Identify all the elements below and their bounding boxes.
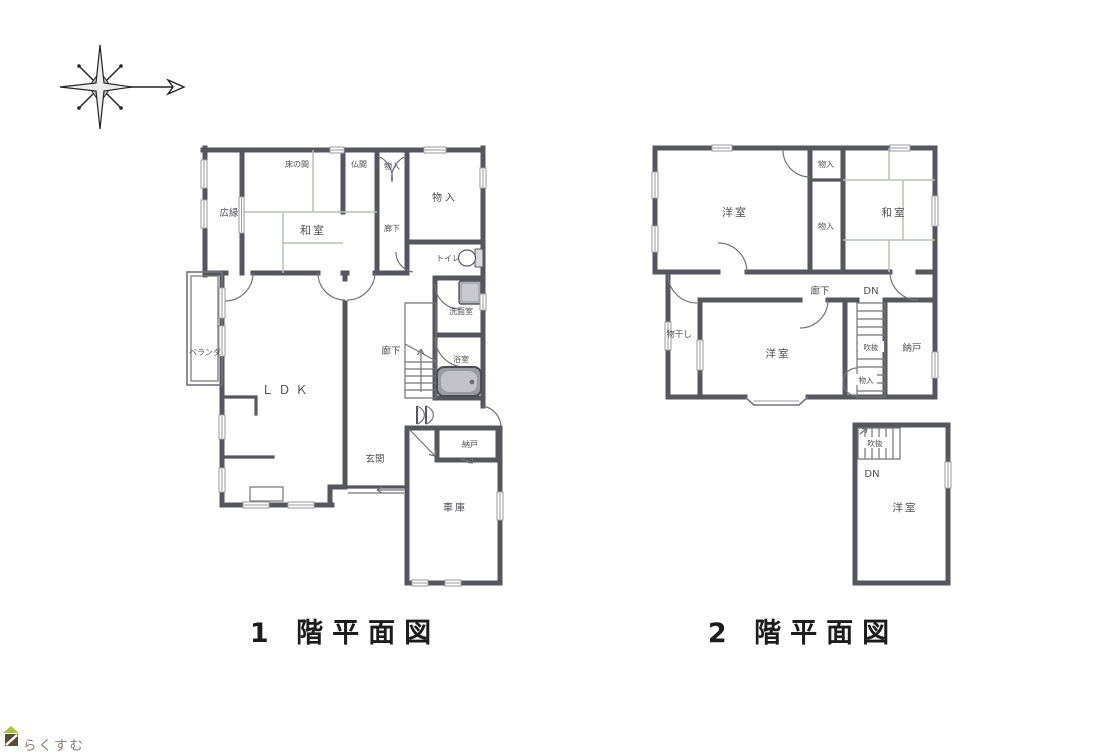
room-label-washitsu-1f: 和室 [300, 223, 326, 237]
logo-text: らくすむ [23, 738, 85, 754]
room-label-monoire-top-2f: 物入 [818, 159, 834, 169]
room-label-genkan: 玄関 [365, 453, 384, 465]
label-dn-lower: DN [864, 469, 879, 480]
room-label-monoire-large: 物入 [432, 191, 458, 204]
room-label-washitsu-2f: 和室 [882, 206, 907, 219]
room-label-tokonoma: 床の間 [285, 159, 309, 169]
room-label-rouka-upper: 廊下 [384, 223, 400, 233]
label-fukinuke-lower: 吹抜 [868, 438, 883, 448]
room-label-yoshitsu-south: 洋室 [893, 501, 918, 514]
toilet-icon [459, 249, 484, 267]
room-label-rouka-2f: 廊下 [810, 285, 829, 297]
label-dn-upper: DN [863, 286, 878, 297]
floor1-title: 1 階平面図 [250, 618, 440, 649]
floor2-plan: 洋室 物入 物入 和室 廊下 DN 物干し 洋室 吹抜 納戸 物入 吹抜 DN … [652, 145, 951, 583]
floor1-kitchen-stub-walls [222, 397, 407, 487]
room-label-monoire-mid-2f: 物入 [818, 221, 834, 231]
stairs-up-arrow [418, 349, 425, 392]
floor2-inner-walls [668, 148, 935, 397]
room-label-senmenshitsu: 洗面室 [449, 306, 473, 316]
floor2-title: 2 階平面図 [708, 618, 898, 649]
compass-star [60, 45, 132, 129]
room-label-hiroen: 広縁 [219, 207, 239, 219]
logo-house-roof-icon [3, 726, 19, 733]
rakusumu-logo: らくすむ [3, 726, 85, 754]
room-label-rouka-1f: 廊下 [381, 345, 400, 357]
room-label-ldk: ＬＤＫ [261, 383, 312, 397]
room-label-butsuma: 仏間 [351, 160, 367, 169]
room-label-nando-2f: 納戸 [902, 342, 921, 354]
room-label-toire: トイレ [436, 254, 460, 263]
garage-slope-line [409, 429, 437, 456]
floor1-inner-walls [222, 150, 483, 398]
floorplan-page: 床の間 仏間 物入 広縁 和室 物入 廊下 トイレ 洗面室 廊下 浴室 ベランダ… [0, 0, 1111, 756]
bathtub-icon [437, 367, 481, 396]
room-label-yokushitsu: 浴室 [453, 354, 469, 364]
label-fukinuke-mid: 吹抜 [864, 342, 879, 352]
washing-machine-icon [459, 281, 481, 304]
room-label-shako: 車庫 [443, 501, 467, 514]
room-label-monohoshi: 物干し [666, 329, 692, 340]
room-label-nando-1f: 納戸 [462, 439, 478, 449]
room-label-veranda: ベランダ [189, 347, 221, 357]
compass-north-icon [60, 45, 184, 129]
kitchen-counter [250, 487, 283, 501]
floorplan-canvas: 床の間 仏間 物入 広縁 和室 物入 廊下 トイレ 洗面室 廊下 浴室 ベランダ… [0, 0, 1111, 756]
room-label-monoire-stairs: 物入 [859, 375, 874, 385]
entrance-double-door-icon [417, 406, 433, 424]
room-label-monoire-top: 物入 [384, 161, 400, 171]
room-label-yoshitsu-nw: 洋室 [722, 205, 748, 219]
bay-window [745, 397, 808, 405]
room-label-yoshitsu-center: 洋室 [766, 347, 791, 360]
floor1-plan: 床の間 仏間 物入 広縁 和室 物入 廊下 トイレ 洗面室 廊下 浴室 ベランダ… [187, 147, 503, 586]
veranda-outline [187, 272, 222, 385]
floor1-stairs [405, 303, 436, 398]
